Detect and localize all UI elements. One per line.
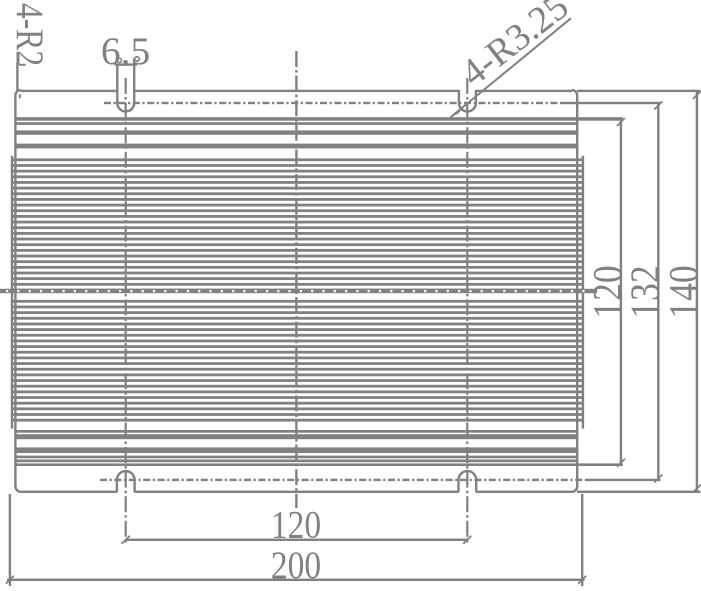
svg-text:120: 120	[271, 502, 321, 546]
svg-text:4-R2: 4-R2	[8, 3, 52, 66]
svg-text:6.5: 6.5	[101, 29, 150, 73]
svg-text:4-R3.25: 4-R3.25	[453, 0, 576, 95]
svg-text:200: 200	[271, 543, 321, 586]
svg-text:140: 140	[662, 265, 701, 318]
